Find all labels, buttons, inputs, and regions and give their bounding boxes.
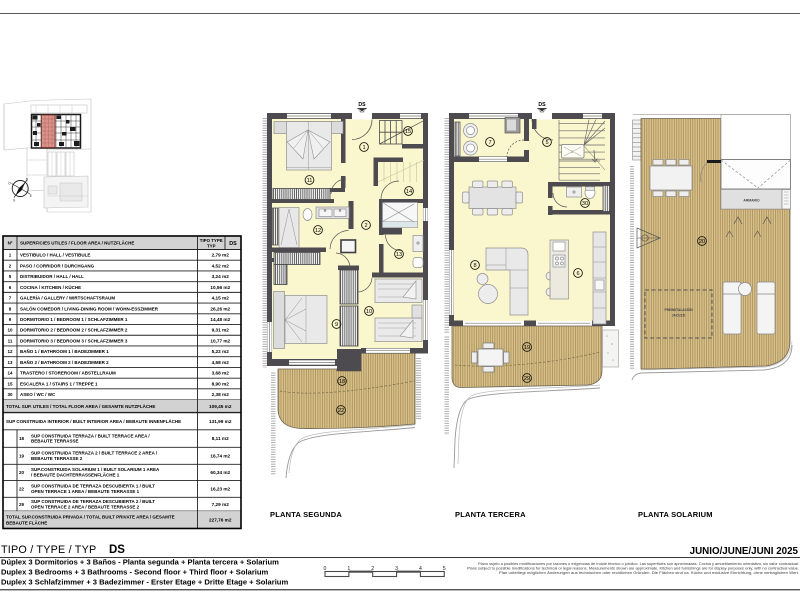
svg-text:5,22 m2: 5,22 m2	[212, 349, 230, 354]
svg-text:Duplex 3 Schlafzimmer + 3 Bade: Duplex 3 Schlafzimmer + 3 Badezimmer - E…	[1, 578, 288, 587]
svg-text:16,74 m2: 16,74 m2	[210, 453, 230, 458]
svg-text:SUP CONSTRUIDA TERRAZA / BUILT: SUP CONSTRUIDA TERRAZA / BUILT TERRACE A…	[31, 433, 150, 438]
svg-text:TIPO / TYPE / TYP: TIPO / TYPE / TYP	[1, 544, 96, 556]
svg-text:ASEO / WC / WC: ASEO / WC / WC	[20, 392, 56, 397]
svg-text:BEBAUTE FLÄCHE: BEBAUTE FLÄCHE	[6, 519, 47, 525]
svg-text:2,79 m2: 2,79 m2	[212, 253, 230, 258]
svg-text:16,23 m2: 16,23 m2	[210, 486, 230, 491]
svg-text:9,31 m2: 9,31 m2	[212, 328, 230, 333]
svg-text:SALÓN COMEDOR / LIVING-DINING: SALÓN COMEDOR / LIVING-DINING ROOM / WOH…	[20, 304, 159, 311]
svg-text:BEBAUTE TERRASSE 2: BEBAUTE TERRASSE 2	[31, 456, 83, 461]
svg-text:26,26 m2: 26,26 m2	[210, 306, 230, 311]
svg-text:DORMITORIO 1 / BEDROOM 1 / SCH: DORMITORIO 1 / BEDROOM 1 / SCHLAFZIMMER …	[20, 317, 128, 322]
svg-text:DS: DS	[358, 102, 366, 108]
svg-text:SUP CONSTRUIDA TERRAZA 2 / BUI: SUP CONSTRUIDA TERRAZA 2 / BUILT TERRACE…	[31, 451, 158, 456]
svg-text:10: 10	[7, 328, 13, 333]
svg-text:S: S	[13, 198, 16, 202]
svg-text:29: 29	[19, 502, 25, 507]
svg-text:10: 10	[366, 309, 372, 315]
svg-text:0: 0	[324, 566, 327, 572]
svg-text:12: 12	[7, 349, 13, 354]
svg-text:JUNIO/JUNE/JUNI 2025: JUNIO/JUNE/JUNI 2025	[690, 546, 799, 557]
svg-text:DS: DS	[229, 241, 237, 247]
svg-text:10,77 m2: 10,77 m2	[210, 338, 230, 343]
svg-text:TOTAL SUP.CONSTRUIDA PRIVADA /: TOTAL SUP.CONSTRUIDA PRIVADA / TOTAL BUI…	[6, 515, 175, 520]
svg-text:6: 6	[576, 271, 579, 277]
svg-text:DORMITORIO 2 / BEDROOM 2 / SCH: DORMITORIO 2 / BEDROOM 2 / SCHLAFZIMMER …	[20, 328, 128, 333]
svg-text:9: 9	[335, 322, 338, 328]
svg-text:TRASTERO / STOREROOM / ABSTELL: TRASTERO / STOREROOM / ABSTELLRAUM	[20, 371, 116, 376]
svg-text:TOTAL SUP. UTILES / TOTAL FLOO: TOTAL SUP. UTILES / TOTAL FLOOR AREA / G…	[6, 403, 155, 409]
svg-text:18: 18	[19, 436, 25, 441]
svg-text:PLANTA SOLARIUM: PLANTA SOLARIUM	[638, 510, 713, 519]
svg-text:20: 20	[699, 239, 705, 245]
svg-text:PASO / CORRIDOR / DURCHGANG: PASO / CORRIDOR / DURCHGANG	[20, 263, 95, 268]
svg-text:VESTIBULO / HALL / VESTIBULE: VESTIBULO / HALL / VESTIBULE	[20, 253, 90, 258]
svg-text:PREINSTALACIÓN: PREINSTALACIÓN	[664, 307, 693, 312]
svg-text:5: 5	[443, 566, 446, 572]
svg-text:ESCALERA 1 / STAIRS 1 / TREPPE: ESCALERA 1 / STAIRS 1 / TREPPE 1	[20, 381, 98, 386]
svg-text:8: 8	[9, 306, 12, 311]
svg-text:2,38 m2: 2,38 m2	[212, 392, 230, 397]
svg-text:131,99 m2: 131,99 m2	[209, 419, 232, 424]
svg-text:13: 13	[7, 360, 13, 365]
svg-text:Nº: Nº	[8, 241, 13, 246]
svg-text:22: 22	[19, 486, 25, 491]
svg-text:OPEN TERRACE 2 AREA / BEBAUTE: OPEN TERRACE 2 AREA / BEBAUTE TERRASSE 2	[31, 504, 140, 509]
svg-text:3,68 m2: 3,68 m2	[212, 371, 230, 376]
svg-text:N: N	[26, 177, 29, 181]
svg-text:2: 2	[9, 263, 12, 268]
svg-text:7: 7	[9, 296, 12, 301]
svg-text:22: 22	[338, 408, 344, 414]
svg-text:5: 5	[545, 140, 548, 146]
svg-text:20: 20	[19, 470, 25, 475]
svg-text:SUPERFICIES UTILES / FLOOR ARE: SUPERFICIES UTILES / FLOOR AREA / NUTZFL…	[20, 240, 134, 246]
svg-text:15: 15	[7, 381, 13, 386]
svg-text:7: 7	[488, 140, 491, 146]
svg-text:30: 30	[582, 201, 588, 207]
svg-text:4,58 m2: 4,58 m2	[212, 360, 230, 365]
svg-text:BEBAUTE TERRASSE: BEBAUTE TERRASSE	[31, 439, 79, 444]
svg-text:7,29 m2: 7,29 m2	[212, 502, 230, 507]
svg-text:3,24 m2: 3,24 m2	[212, 274, 230, 279]
svg-text:GALERÍA / GALLERY / WIRTSCHAFT: GALERÍA / GALLERY / WIRTSCHAFTSRAUM	[20, 294, 115, 301]
svg-text:4,15 m2: 4,15 m2	[212, 296, 230, 301]
svg-text:O: O	[8, 181, 11, 185]
svg-text:8,11 m2: 8,11 m2	[212, 436, 229, 441]
svg-text:10,56 m2: 10,56 m2	[210, 285, 230, 290]
svg-text:DS: DS	[109, 544, 125, 556]
svg-text:6: 6	[9, 285, 12, 290]
svg-text:COCINA / KITCHEN / KÜCHE: COCINA / KITCHEN / KÜCHE	[20, 284, 81, 290]
svg-text:Plano sujeto a posibles modifi: Plano sujeto a posibles modificaciones p…	[478, 562, 799, 566]
svg-text:SUP CONSTRUIDA DE TERRAZA DESC: SUP CONSTRUIDA DE TERRAZA DESCUBIERTA 1 …	[31, 484, 155, 489]
svg-text:9: 9	[9, 317, 12, 322]
svg-text:1: 1	[9, 253, 12, 258]
svg-text:E: E	[30, 194, 33, 198]
svg-text:5: 5	[9, 274, 12, 279]
svg-text:SUP.CONSTRUIDA SOLARIUM 1 / BU: SUP.CONSTRUIDA SOLARIUM 1 / BUILT SOLARI…	[31, 467, 160, 472]
svg-text:Dúplex 3 Dormitorios + 3 Baños: Dúplex 3 Dormitorios + 3 Baños - Planta …	[1, 558, 279, 567]
svg-text:ARMARIO: ARMARIO	[743, 199, 760, 203]
svg-text:BAÑO 2 / BATHROOM 2 / BADEZIMM: BAÑO 2 / BATHROOM 2 / BADEZIMMER 2	[20, 359, 109, 365]
svg-text:DORMITORIO 3 / BEDROOM 3 / SCH: DORMITORIO 3 / BEDROOM 3 / SCHLAFZIMMER …	[20, 338, 128, 343]
svg-text:2: 2	[364, 223, 367, 229]
svg-text:Duplex 3 Bedrooms + 3 Bathroom: Duplex 3 Bedrooms + 3 Bathrooms - Second…	[1, 568, 269, 577]
svg-text:/ BEBAUTE DACHTERRASSENFLÄCHE: / BEBAUTE DACHTERRASSENFLÄCHE 1	[31, 472, 120, 478]
svg-text:18: 18	[339, 379, 345, 385]
svg-text:8,90 m2: 8,90 m2	[212, 381, 230, 386]
svg-text:PLANTA SEGUNDA: PLANTA SEGUNDA	[270, 510, 342, 519]
svg-text:SUP CONSTRUIDA DE TERRAZA DESC: SUP CONSTRUIDA DE TERRAZA DESCUBIERTA 2 …	[31, 499, 155, 504]
svg-text:11: 11	[307, 178, 313, 184]
svg-text:4,52 m2: 4,52 m2	[212, 263, 230, 268]
svg-text:109,45 m2: 109,45 m2	[209, 404, 232, 409]
svg-text:Plans subject to possible modi: Plans subject to possible modifications …	[467, 567, 799, 571]
svg-text:19: 19	[19, 453, 25, 458]
svg-text:TYP: TYP	[207, 243, 216, 248]
svg-text:JACUZZI: JACUZZI	[672, 314, 686, 318]
svg-text:227,76 m2: 227,76 m2	[209, 517, 232, 522]
svg-text:14: 14	[7, 371, 13, 376]
svg-text:15: 15	[405, 129, 411, 135]
svg-text:13: 13	[396, 252, 402, 258]
svg-text:OPEN TERRACE 1 AREA / BEBAUTE: OPEN TERRACE 1 AREA / BEBAUTE TERRASSE 1	[31, 489, 140, 494]
svg-text:19: 19	[524, 345, 530, 351]
svg-text:29: 29	[524, 376, 530, 382]
svg-text:Plan unterliegt möglichen Ände: Plan unterliegt möglichen Änderungen aus…	[499, 571, 799, 575]
svg-text:DS: DS	[538, 102, 546, 108]
svg-text:60,34 m2: 60,34 m2	[210, 470, 230, 475]
svg-text:BAÑO 1 / BATHROOM 1 / BADEZIMM: BAÑO 1 / BATHROOM 1 / BADEZIMMER 1	[20, 348, 109, 354]
svg-text:30: 30	[7, 392, 13, 397]
svg-text:11: 11	[8, 338, 13, 343]
svg-text:PLANTA TERCERA: PLANTA TERCERA	[455, 510, 526, 519]
svg-text:14,48 m2: 14,48 m2	[210, 317, 230, 322]
svg-text:SUP CONSTRUIDA INTERIOR / BUIL: SUP CONSTRUIDA INTERIOR / BUILT INTERIOR…	[6, 418, 181, 424]
svg-text:14: 14	[406, 189, 412, 195]
svg-text:12: 12	[315, 228, 321, 234]
svg-text:1: 1	[362, 145, 365, 151]
svg-text:DISTRIBUIDOR / HALL / HALL: DISTRIBUIDOR / HALL / HALL	[20, 274, 84, 279]
svg-text:8: 8	[473, 263, 476, 269]
